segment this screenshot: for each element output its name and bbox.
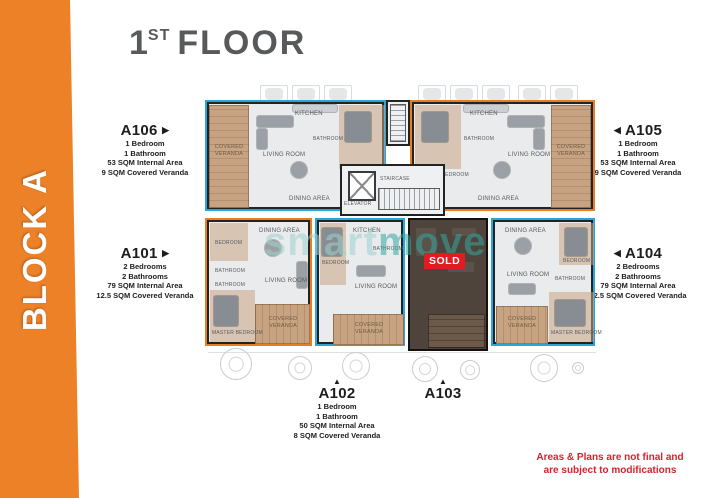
room-label-staircase: STAIRCASE bbox=[380, 176, 410, 182]
unit-name: A101 ▶ bbox=[75, 245, 215, 262]
tree-symbol bbox=[412, 356, 438, 382]
furniture-dining-table bbox=[291, 162, 307, 178]
block-banner: BLOCK A bbox=[0, 0, 82, 498]
floor-word: FLOOR bbox=[177, 24, 306, 62]
unit-name: A103 bbox=[383, 386, 503, 402]
unit-shape-a101: COVERED VERANDA BEDROOM BATHROOM BATHROO… bbox=[205, 218, 312, 346]
floor-plan: COVERED VERANDA KITCHEN LIVING ROOM DINI… bbox=[200, 60, 600, 375]
entrance-shaft bbox=[386, 100, 410, 146]
room-label-bathroom: BATHROOM bbox=[555, 276, 585, 282]
room-label-living-room: LIVING ROOM bbox=[265, 278, 307, 284]
room-label-living-room: LIVING ROOM bbox=[263, 152, 305, 158]
room-label-dining-area: DINING AREA bbox=[289, 196, 330, 202]
room-label-covered-veranda: COVERED VERANDA bbox=[349, 322, 389, 335]
unit-shape-a104: COVERED VERANDA DINING AREA LIVING ROOM … bbox=[491, 218, 595, 346]
unit-detail: 9 SQM Covered Veranda bbox=[75, 168, 215, 178]
room-label-dining-area: DINING AREA bbox=[505, 228, 546, 234]
unit-info-a102: ▲ A102 1 Bedroom 1 Bathroom 50 SQM Inter… bbox=[277, 377, 397, 440]
room-label-dining-area: DINING AREA bbox=[478, 196, 519, 202]
arrow-right-icon: ▶ bbox=[162, 248, 169, 258]
unit-detail: 2 Bedrooms bbox=[75, 262, 215, 272]
unit-detail: 1 Bedroom bbox=[75, 139, 215, 149]
page-title: 1STFLOOR bbox=[129, 24, 306, 63]
room-label-bedroom: BEDROOM bbox=[215, 240, 242, 246]
furniture-sofa bbox=[509, 284, 535, 294]
furniture-dining-table bbox=[515, 238, 531, 254]
tree-symbol bbox=[572, 362, 584, 374]
flyer-page: BLOCK A 1STFLOOR A106 ▶ 1 Bedroom 1 Bath… bbox=[0, 0, 705, 498]
room-label-dining-area: DINING AREA bbox=[259, 228, 300, 234]
unit-detail: 12.5 SQM Covered Veranda bbox=[75, 291, 215, 301]
staircase-hatch bbox=[378, 188, 440, 210]
disclaimer-line: are subject to modifications bbox=[528, 464, 692, 477]
disclaimer-line: Areas & Plans are not final and bbox=[528, 451, 692, 464]
room-label-master-bedroom: MASTER BEDROOM bbox=[212, 330, 263, 336]
room-label-bathroom: BATHROOM bbox=[464, 136, 494, 142]
room-label-kitchen: KITCHEN bbox=[470, 111, 498, 117]
room-label-master-bedroom: MASTER BEDROOM bbox=[551, 330, 602, 336]
room-label-kitchen: KITCHEN bbox=[353, 228, 381, 234]
furniture-bed bbox=[214, 296, 238, 326]
furniture-bed bbox=[422, 112, 448, 142]
unit-shape-a103 bbox=[408, 218, 488, 351]
room-label-elevator: ELEVATOR bbox=[344, 201, 371, 207]
furniture-sofa bbox=[257, 129, 267, 149]
room-label-kitchen: KITCHEN bbox=[295, 111, 323, 117]
tree-symbol bbox=[220, 348, 252, 380]
unit-detail: 8 SQM Covered Veranda bbox=[277, 431, 397, 441]
disclaimer: Areas & Plans are not final and are subj… bbox=[528, 451, 692, 477]
sold-badge: SOLD bbox=[424, 253, 465, 269]
furniture-sofa bbox=[297, 262, 307, 288]
arrow-left-icon: ◀ bbox=[614, 125, 621, 135]
unit-name: A102 bbox=[277, 386, 397, 402]
unit-info-a103: ▲ A103 bbox=[383, 377, 503, 402]
room-label-bathroom: BATHROOM bbox=[215, 282, 245, 288]
room-label-living-room: LIVING ROOM bbox=[355, 284, 397, 290]
room-label-covered-veranda: COVERED VERANDA bbox=[502, 316, 542, 329]
unit-name: A106 ▶ bbox=[75, 122, 215, 139]
unit-detail: 53 SQM Internal Area bbox=[75, 158, 215, 168]
room-label-bathroom: BATHROOM bbox=[313, 136, 343, 142]
tree-symbol bbox=[530, 354, 558, 382]
veranda-a103 bbox=[428, 314, 485, 348]
room-label-living-room: LIVING ROOM bbox=[507, 272, 549, 278]
furniture-bed bbox=[565, 228, 587, 256]
furniture-kitchen-counter bbox=[452, 228, 476, 236]
furniture-bed bbox=[345, 112, 371, 142]
block-banner-label: BLOCK A bbox=[16, 168, 54, 331]
elevator-shaft bbox=[348, 171, 376, 201]
ground-line bbox=[208, 352, 596, 353]
unit-detail: 1 Bathroom bbox=[75, 149, 215, 159]
room-label-covered-veranda: COVERED VERANDA bbox=[211, 144, 247, 157]
furniture-sofa bbox=[257, 116, 293, 127]
room-label-covered-veranda: COVERED VERANDA bbox=[553, 144, 589, 157]
furniture-dining-table bbox=[494, 162, 510, 178]
furniture-sofa bbox=[508, 116, 544, 127]
furniture-sofa bbox=[357, 266, 385, 276]
floor-ordinal: ST bbox=[148, 27, 170, 44]
unit-detail: 2 Bathrooms bbox=[75, 272, 215, 282]
unit-shape-a102: COVERED VERANDA BEDROOM KITCHEN BATHROOM… bbox=[315, 218, 405, 346]
tree-symbol bbox=[342, 352, 370, 380]
furniture-bed bbox=[555, 300, 585, 326]
unit-detail: 50 SQM Internal Area bbox=[277, 421, 397, 431]
unit-detail: 1 Bedroom bbox=[277, 402, 397, 412]
tree-symbol bbox=[288, 356, 312, 380]
unit-info-a106: A106 ▶ 1 Bedroom 1 Bathroom 53 SQM Inter… bbox=[75, 122, 215, 177]
arrow-right-icon: ▶ bbox=[162, 125, 169, 135]
staircase-hatch bbox=[390, 104, 406, 142]
room-label-living-room: LIVING ROOM bbox=[508, 152, 550, 158]
room-label-bathroom: BATHROOM bbox=[215, 268, 245, 274]
building-core: ELEVATOR STAIRCASE bbox=[340, 164, 445, 216]
furniture-bed bbox=[322, 228, 342, 256]
furniture-bed bbox=[416, 228, 436, 256]
unit-info-a101: A101 ▶ 2 Bedrooms 2 Bathrooms 79 SQM Int… bbox=[75, 245, 215, 300]
room-label-bathroom: BATHROOM bbox=[373, 246, 403, 252]
tree-symbol bbox=[460, 360, 480, 380]
unit-detail: 79 SQM Internal Area bbox=[75, 281, 215, 291]
furniture-dining-table bbox=[265, 240, 281, 256]
floor-number: 1 bbox=[129, 24, 148, 62]
furniture-sofa bbox=[534, 129, 544, 149]
unit-detail: 1 Bathroom bbox=[277, 412, 397, 422]
room-label-covered-veranda: COVERED VERANDA bbox=[263, 316, 303, 329]
room-label-bedroom: BEDROOM bbox=[322, 260, 349, 266]
room-label-bedroom: BEDROOM bbox=[563, 258, 590, 264]
arrow-left-icon: ◀ bbox=[614, 248, 621, 258]
